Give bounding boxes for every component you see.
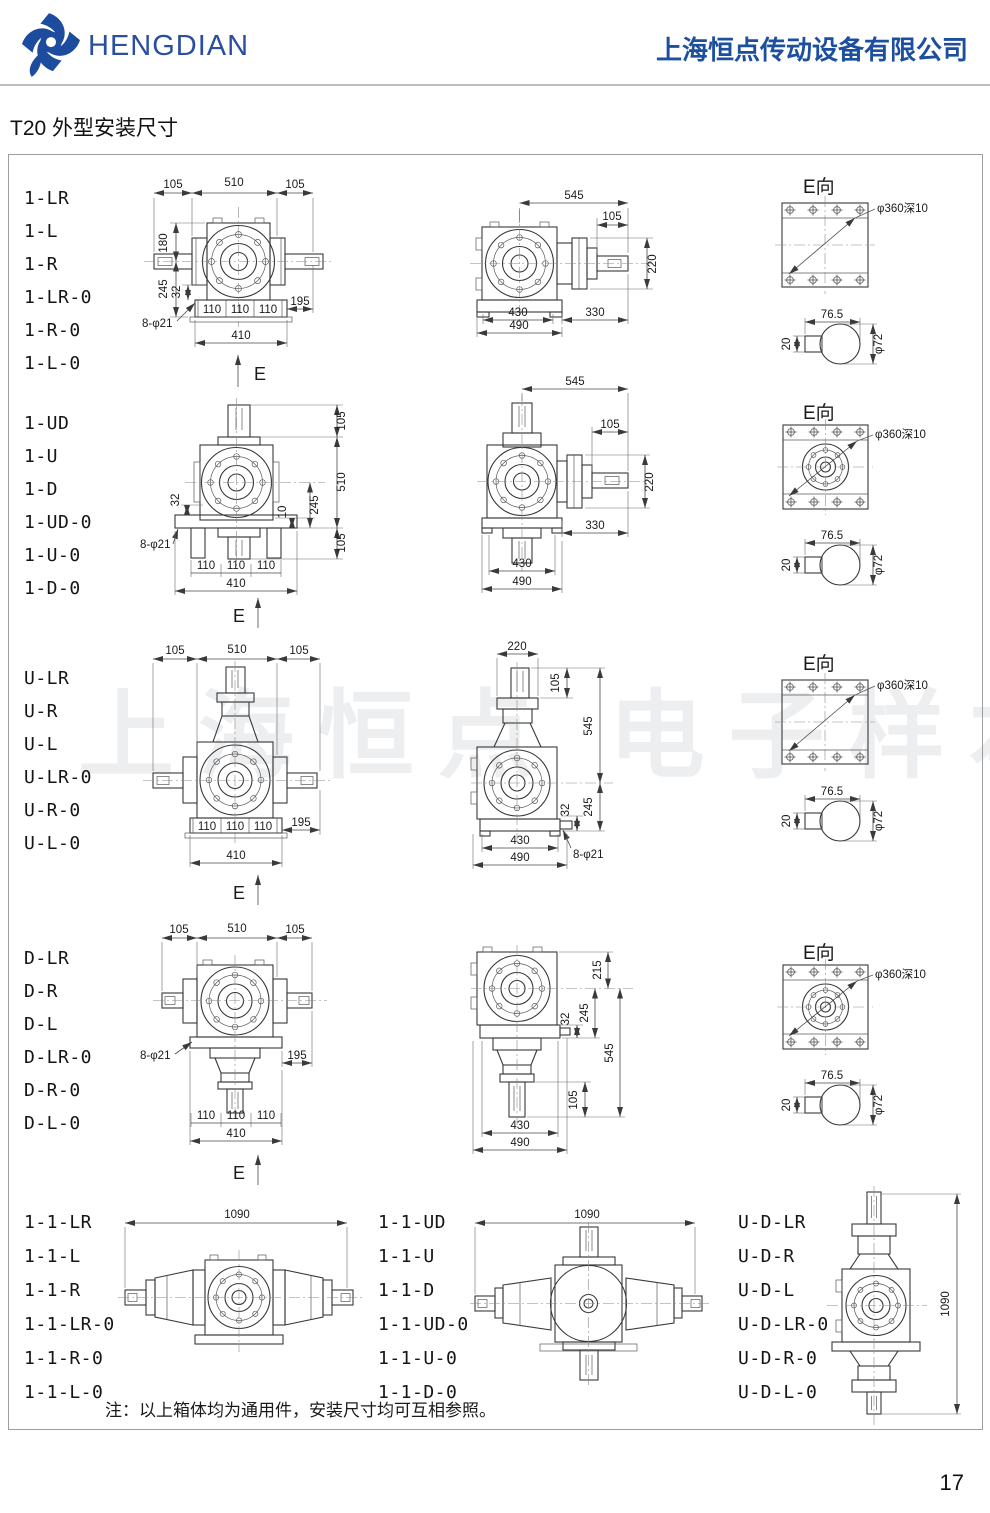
dim-label: 245 [583, 797, 595, 816]
dim-label: 10 [277, 506, 289, 519]
dim-label: 105 [169, 924, 188, 936]
thread-callout: φ360深10 [875, 427, 926, 441]
model-label: 1-1-L [24, 1246, 115, 1280]
view-title: E向 [803, 402, 835, 424]
model-label: 1-1-U-0 [378, 1348, 469, 1382]
dim-label: 105 [602, 211, 621, 223]
dim-label: 1090 [224, 1209, 250, 1221]
catalog-page: HENGDIAN 上海恒点传动设备有限公司 T20 外型安装尺寸 上海恒点 电子… [0, 0, 990, 1513]
dim-label: 76.5 [821, 309, 843, 321]
dim-label: φ72 [873, 555, 885, 575]
dim-label: 76.5 [821, 1070, 843, 1082]
dim-label: 430 [512, 558, 531, 570]
model-label: D-LR [24, 948, 92, 981]
dim-label: 215 [592, 960, 604, 979]
model-list-row5a: 1-1-LR 1-1-L 1-1-R 1-1-LR-0 1-1-R-0 1-1-… [24, 1212, 115, 1416]
model-label: 1-1-UD-0 [378, 1314, 469, 1348]
row1-side-view-drawing: 545 105 220 330 430 490 [460, 168, 760, 363]
dim-label: 490 [509, 320, 528, 332]
dim-label: 105 [289, 645, 308, 657]
row2-e-view-drawing: E向 φ360深10 76.5 20 φ72 [765, 395, 980, 610]
dim-label: 32 [171, 286, 183, 299]
model-label: 1-1-R-0 [24, 1348, 115, 1382]
dimension-lines [482, 389, 650, 593]
thread-callout: φ360深10 [877, 678, 928, 692]
dim-label: 510 [227, 923, 246, 935]
dim-label: 105 [165, 645, 184, 657]
dim-label: 510 [227, 644, 246, 656]
dim-label: 76.5 [821, 786, 843, 798]
model-label: D-L-0 [24, 1113, 92, 1146]
dim-label: 510 [224, 177, 243, 189]
model-label: 1-LR-0 [24, 287, 92, 320]
view-direction-label: E [233, 606, 245, 626]
row1-e-view-drawing: E向 φ360深10 76.5 20 φ72 [765, 168, 980, 378]
dim-label: 545 [583, 716, 595, 735]
shaft-section [793, 539, 877, 585]
gearbox-outline [175, 398, 325, 568]
dim-label: 195 [291, 817, 310, 829]
model-list-row1: 1-LR 1-L 1-R 1-LR-0 1-R-0 1-L-0 [24, 188, 92, 386]
dim-label: 105 [600, 419, 619, 431]
shaft-section [793, 1079, 877, 1125]
dim-label: 430 [510, 835, 529, 847]
dim-label: 110 [257, 1110, 275, 1122]
dim-label: 110 [259, 304, 277, 316]
dim-label: 8-φ21 [140, 539, 170, 551]
dim-label: 245 [579, 1003, 591, 1022]
shaft-section [793, 318, 877, 364]
dim-label: 545 [565, 376, 584, 388]
row5-vertical-gearbox-drawing: 1090 [815, 1180, 985, 1440]
view-direction-label: E [254, 364, 266, 384]
dim-label: 410 [226, 578, 245, 590]
model-label: 1-D-0 [24, 578, 92, 611]
dim-label: 32 [560, 1013, 572, 1026]
row3-front-view-drawing: 105 510 105 110 110 110 195 410 E [115, 645, 455, 910]
dim-label: 110 [198, 821, 216, 833]
dim-label: 20 [781, 815, 793, 828]
page-title: T20 外型安装尺寸 [10, 112, 178, 142]
dim-label: 110 [254, 821, 272, 833]
dim-label: 430 [508, 307, 527, 319]
dim-label: φ72 [873, 1095, 885, 1115]
dim-label: 110 [231, 304, 249, 316]
view-title: E向 [803, 942, 835, 964]
model-label: 1-D [24, 479, 92, 512]
row4-e-view-drawing: E向 φ360深10 76.5 20 φ72 [765, 935, 980, 1150]
model-label: U-L-0 [24, 833, 92, 866]
dim-label: φ72 [873, 811, 885, 831]
brand-name: HENGDIAN [88, 30, 249, 63]
row2-front-view-drawing: 105 510 105 10 245 32 8-φ21 110 110 110 … [115, 388, 455, 638]
dim-label: 490 [510, 852, 529, 864]
dim-label: 20 [781, 559, 793, 572]
model-label: D-R [24, 981, 92, 1014]
model-label: U-LR-0 [24, 767, 92, 800]
dim-label: 1090 [574, 1209, 600, 1221]
gearbox-outline [153, 955, 327, 1120]
row4-side-view-drawing: 215 32 245 545 105 430 490 [455, 925, 715, 1175]
dim-label: 105 [336, 411, 348, 430]
dim-label: 510 [336, 472, 348, 491]
model-label: 1-UD [24, 413, 92, 446]
model-label: D-R-0 [24, 1080, 92, 1113]
model-list-row2: 1-UD 1-U 1-D 1-UD-0 1-U-0 1-D-0 [24, 413, 92, 611]
view-direction-label: E [233, 1163, 245, 1183]
dim-label: 180 [158, 233, 170, 252]
model-label: U-R [24, 701, 92, 734]
dim-label: 110 [197, 1110, 215, 1122]
dim-label: 110 [227, 560, 245, 572]
view-direction-label: E [233, 883, 245, 903]
dim-label: 220 [507, 641, 526, 653]
dimension-lines [125, 1223, 347, 1288]
model-label: U-R-0 [24, 800, 92, 833]
dim-label: 8-φ21 [573, 849, 603, 861]
row4-front-view-drawing: 105 510 105 8-φ21 195 110 110 110 410 E [115, 915, 455, 1205]
model-label: U-LR [24, 668, 92, 701]
dim-label: 195 [290, 296, 309, 308]
dim-label: 20 [781, 338, 793, 351]
view-title: E向 [803, 653, 835, 675]
model-label: 1-L-0 [24, 353, 92, 386]
dim-label: 245 [158, 279, 170, 298]
dim-label: 105 [285, 924, 304, 936]
dim-label: 410 [231, 330, 250, 342]
dim-label: 105 [568, 1090, 580, 1109]
model-label: 1-1-UD [378, 1212, 469, 1246]
dim-label: 110 [257, 560, 275, 572]
model-label: 1-R-0 [24, 320, 92, 353]
model-label: 1-1-L-0 [24, 1382, 115, 1416]
dim-label: 1090 [940, 1291, 952, 1317]
model-label: 1-U-0 [24, 545, 92, 578]
gearbox-outline [477, 395, 651, 571]
dim-label: 410 [226, 1128, 245, 1140]
model-label: 1-U [24, 446, 92, 479]
company-name: 上海恒点传动设备有限公司 [656, 30, 968, 67]
model-label: U-L [24, 734, 92, 767]
dim-label: 330 [585, 520, 604, 532]
model-label: D-LR-0 [24, 1047, 92, 1080]
header-divider [0, 84, 990, 86]
row5-four-shaft-gearbox-drawing: 1090 [465, 1200, 715, 1395]
model-label: 1-1-LR-0 [24, 1314, 115, 1348]
view-title: E向 [803, 176, 835, 198]
model-list-row3: U-LR U-R U-L U-LR-0 U-R-0 U-L-0 [24, 668, 92, 866]
row3-e-view-drawing: E向 φ360深10 76.5 20 φ72 [765, 645, 980, 855]
dimension-lines [173, 405, 343, 628]
model-label: 1-1-LR [24, 1212, 115, 1246]
dim-label: 105 [550, 673, 562, 692]
dim-label: 8-φ21 [140, 1050, 170, 1062]
dim-label: 410 [226, 850, 245, 862]
dim-label: 8-φ21 [142, 318, 172, 330]
flange-face [775, 673, 875, 771]
dim-label: 105 [163, 179, 182, 191]
dim-label: 545 [564, 190, 583, 202]
dim-label: 32 [560, 804, 572, 817]
dim-label: 430 [510, 1120, 529, 1132]
gearbox-outline [470, 1222, 709, 1386]
dim-label: 330 [585, 307, 604, 319]
dim-label: 105 [285, 179, 304, 191]
footnote: 注：以上箱体均为通用件，安装尺寸均可互相参照。 [105, 1396, 496, 1421]
dim-label: 195 [287, 1050, 306, 1062]
dim-label: 32 [170, 494, 182, 507]
model-label: 1-UD-0 [24, 512, 92, 545]
page-number: 17 [940, 1470, 964, 1496]
model-label: 1-LR [24, 188, 92, 221]
thread-callout: φ360深10 [877, 201, 928, 215]
dim-label: 220 [644, 472, 656, 491]
model-label: 1-1-U [378, 1246, 469, 1280]
dim-label: 110 [197, 560, 215, 572]
model-label: 1-1-D [378, 1280, 469, 1314]
dim-label: 20 [781, 1099, 793, 1112]
gearbox-outline [827, 1186, 927, 1425]
model-list-row5b: 1-1-UD 1-1-U 1-1-D 1-1-UD-0 1-1-U-0 1-1-… [378, 1212, 469, 1416]
model-list-row4: D-LR D-R D-L D-LR-0 D-R-0 D-L-0 [24, 948, 92, 1146]
dimension-lines [153, 659, 320, 905]
gearbox-outline [118, 1250, 362, 1352]
model-label: 1-L [24, 221, 92, 254]
row5-horizontal-gearbox-drawing: 1090 [110, 1200, 370, 1380]
dimension-lines [473, 654, 605, 869]
row3-side-view-drawing: 220 105 545 32 245 8-φ21 430 490 [455, 640, 715, 890]
dim-label: 220 [647, 254, 659, 273]
dim-label: 110 [203, 304, 221, 316]
model-label: 1-R [24, 254, 92, 287]
flange-face [777, 419, 873, 515]
thread-callout: φ360深10 [875, 967, 926, 981]
dim-label: 490 [510, 1137, 529, 1149]
shaft-section [793, 795, 877, 841]
pinwheel-logo-icon [22, 10, 80, 80]
row1-front-view-drawing: 105 510 105 180 245 32 8-φ21 110 110 110… [120, 165, 440, 400]
dim-label: 110 [226, 821, 244, 833]
dim-label: 245 [309, 495, 321, 514]
dim-label: 105 [336, 533, 348, 552]
model-label: D-L [24, 1014, 92, 1047]
dim-label: 76.5 [821, 530, 843, 542]
row2-side-view-drawing: 545 105 220 330 430 490 [455, 375, 755, 615]
dim-label: 545 [604, 1043, 616, 1062]
flange-face [777, 959, 873, 1055]
flange-face [775, 196, 875, 294]
dim-label: φ72 [873, 334, 885, 354]
model-label: 1-1-R [24, 1280, 115, 1314]
dim-label: 490 [512, 576, 531, 588]
gearbox-outline [471, 945, 633, 1125]
dim-label: 110 [227, 1110, 245, 1122]
